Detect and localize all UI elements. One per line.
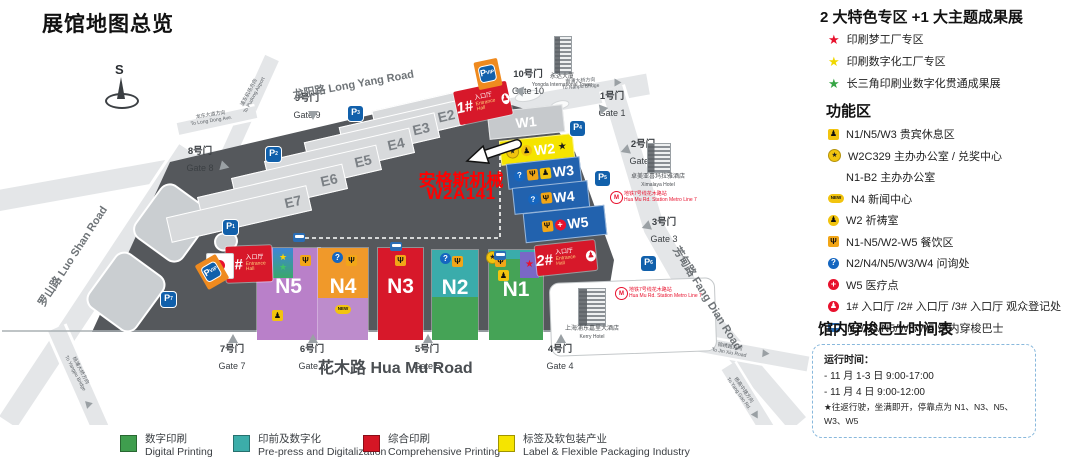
function-label: N4 新闻中心 [851,191,912,207]
shuttle-schedule-box: 运行时间： - 11 月 1-3 日 9:00-17:00- 11 月 4 日 … [812,344,1036,438]
shuttle-line: ★往返行驶，坐满即开，停靠点为 N1、N3、N5、W3、W5 [824,401,1024,429]
legend-color-swatch [120,435,137,452]
functions-title: 功能区 [826,100,871,121]
function-item: ΨN1-N5/W2-W5 餐饮区 [828,234,1061,250]
function-label: N2/N4/N5/W3/W4 问询处 [846,255,969,271]
special-zone-item: ★长三角印刷业数字化贯通成果展 [828,75,1001,91]
starc-icon: ★ [828,149,841,162]
shuttle-title: 馆内穿梭巴士时间表 [818,318,953,339]
legend-color-swatch [233,435,250,452]
venue-map: 安格斯机械 W2A141 E1E2E3E4E5E6E7W1★♟W2★?Ψ♟W3?… [0,0,810,425]
function-item: ?N2/N4/N5/W3/W4 问询处 [828,255,1061,271]
function-item: N1-B2 主办办公室 [828,169,1061,185]
special-zone-item: ★印刷梦工厂专区 [828,31,1001,47]
function-label: W2C329 主办办公室 / 兑奖中心 [848,148,1002,164]
special-zones-list: ★印刷梦工厂专区★印刷数字化工厂专区★长三角印刷业数字化贯通成果展 [828,31,1001,97]
legend-label: 综合印刷Comprehensive Printing [388,433,500,459]
prayer-icon: ♟ [828,215,839,226]
legend-label: 标签及软包装产业Label & Flexible Packaging Indus… [523,433,690,459]
zone-label: 长三角印刷业数字化贯通成果展 [847,75,1001,91]
functions-list: ♟N1/N5/W3 贵宾休息区★W2C329 主办办公室 / 兑奖中心N1-B2… [828,126,1061,341]
legend-item: 综合印刷Comprehensive Printing [363,433,500,459]
special-zones-title: 2 大特色专区 +1 大主题成果展 [820,6,1023,27]
vip-icon: ♟ [828,129,839,140]
function-label: 1# 入口厅 /2# 入口厅 /3# 入口厅 观众登记处 [846,298,1061,314]
function-item: NEWN4 新闻中心 [828,191,1061,207]
function-item: ♟N1/N5/W3 贵宾休息区 [828,126,1061,142]
reg-icon: ♟ [828,301,839,312]
function-label: W2 祈祷室 [846,212,899,228]
fork-icon: Ψ [828,236,839,247]
sidebar: 2 大特色专区 +1 大主题成果展 ★印刷梦工厂专区★印刷数字化工厂专区★长三角… [818,0,1080,460]
zone-star-icon: ★ [828,77,840,90]
function-item: ★W2C329 主办办公室 / 兑奖中心 [828,148,1061,164]
zone-star-icon: ★ [828,55,840,68]
zone-label: 印刷数字化工厂专区 [847,53,946,69]
legend-item: 数字印刷Digital Printing [120,433,213,459]
med-icon: + [828,279,839,290]
legend-label: 数字印刷Digital Printing [145,433,213,459]
zone-label: 印刷梦工厂专区 [847,31,924,47]
shuttle-line: - 11 月 1-3 日 9:00-17:00 [824,369,1024,385]
zone-star-icon: ★ [828,33,840,46]
function-item: ♟W2 祈祷室 [828,212,1061,228]
shuttle-heading: 运行时间： [824,353,1024,369]
function-label: N1-B2 主办办公室 [846,169,935,185]
booth-annotation-arrow [0,0,810,425]
industry-legend: 数字印刷Digital Printing印前及数字化Pre-press and … [0,430,810,460]
function-label: N1/N5/W3 贵宾休息区 [846,126,955,142]
annotation-booth-number: W2A141 [405,184,517,204]
exhibition-map-page: { "title": "展馆地图总览", "compass": {"label"… [0,0,1080,460]
function-item: +W5 医疗点 [828,277,1061,293]
function-label: W5 医疗点 [846,277,899,293]
legend-item: 标签及软包装产业Label & Flexible Packaging Indus… [498,433,690,459]
legend-color-swatch [363,435,380,452]
new-icon: NEW [828,194,844,203]
special-zone-item: ★印刷数字化工厂专区 [828,53,1001,69]
function-label: N1-N5/W2-W5 餐饮区 [846,234,954,250]
legend-color-swatch [498,435,515,452]
shuttle-line: - 11 月 4 日 9:00-12:00 [824,385,1024,401]
q-icon: ? [828,258,839,269]
function-item: ♟1# 入口厅 /2# 入口厅 /3# 入口厅 观众登记处 [828,298,1061,314]
